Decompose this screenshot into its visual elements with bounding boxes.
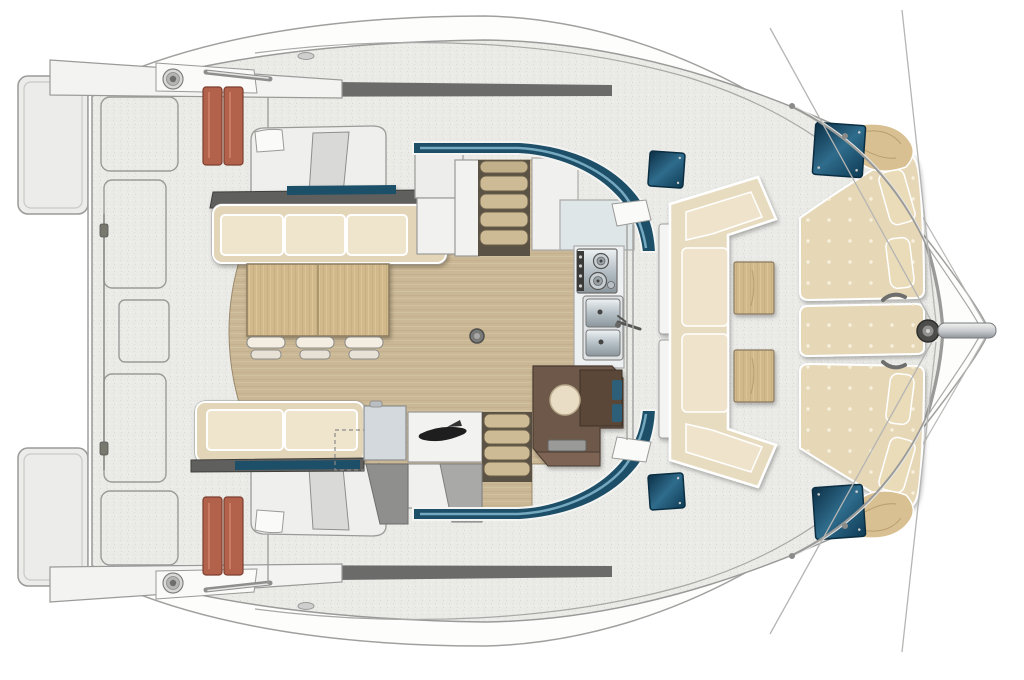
nav-teal-accent [612,404,622,422]
swim-platform-top [18,76,88,214]
door-jamb-bottom [612,437,651,462]
salon-sofa-forward [210,185,447,264]
nav-slot [548,440,586,451]
sofa-cushion [285,215,345,255]
cockpit-cushion [682,334,728,412]
sofa-cushion [285,410,357,450]
nav-teal-accent [612,380,622,400]
nav-stool [550,385,580,415]
stove [577,249,617,293]
deck-hatch [648,151,685,188]
sofa-cushion [207,410,283,450]
salon-window-sliver-bottom [235,460,360,470]
bar-stools [247,337,383,359]
mini-cabinet [364,406,406,460]
dining-table [247,264,389,336]
winch-bottom [163,573,183,593]
winch-top [163,69,183,89]
rail-fitting-bottom [298,603,314,610]
rail-fitting-top [298,53,314,60]
mini-cabinet-knob [370,401,382,407]
bowsprit [938,323,996,338]
deck-hatch [648,473,685,510]
cockpit-cushion [682,248,728,326]
mast-post [470,329,484,343]
salon-sofa-aft [195,401,365,463]
helm-console-bottom [251,464,386,536]
swim-platform-bottom [18,448,88,586]
catamaran-deck-plan [0,0,1024,680]
salon-window-sliver-top [287,185,396,195]
anchor-hub [917,320,939,342]
companionway-stairs-top [455,160,530,256]
sofa-cushion [221,215,283,255]
sofa-cushion [347,215,407,255]
